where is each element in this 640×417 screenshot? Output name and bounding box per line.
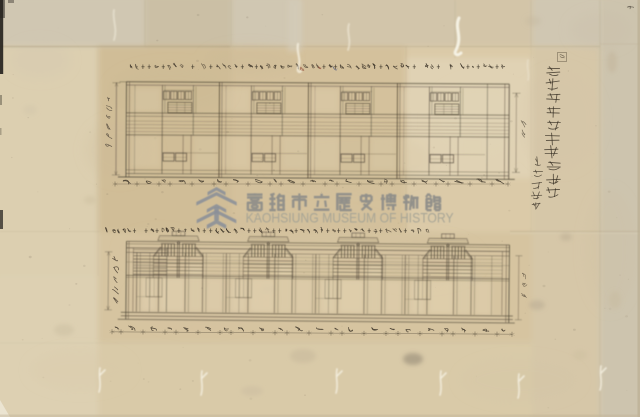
svg-text:KAOHSIUNG MUSEUM OF HISTORY: KAOHSIUNG MUSEUM OF HISTORY	[246, 211, 454, 226]
